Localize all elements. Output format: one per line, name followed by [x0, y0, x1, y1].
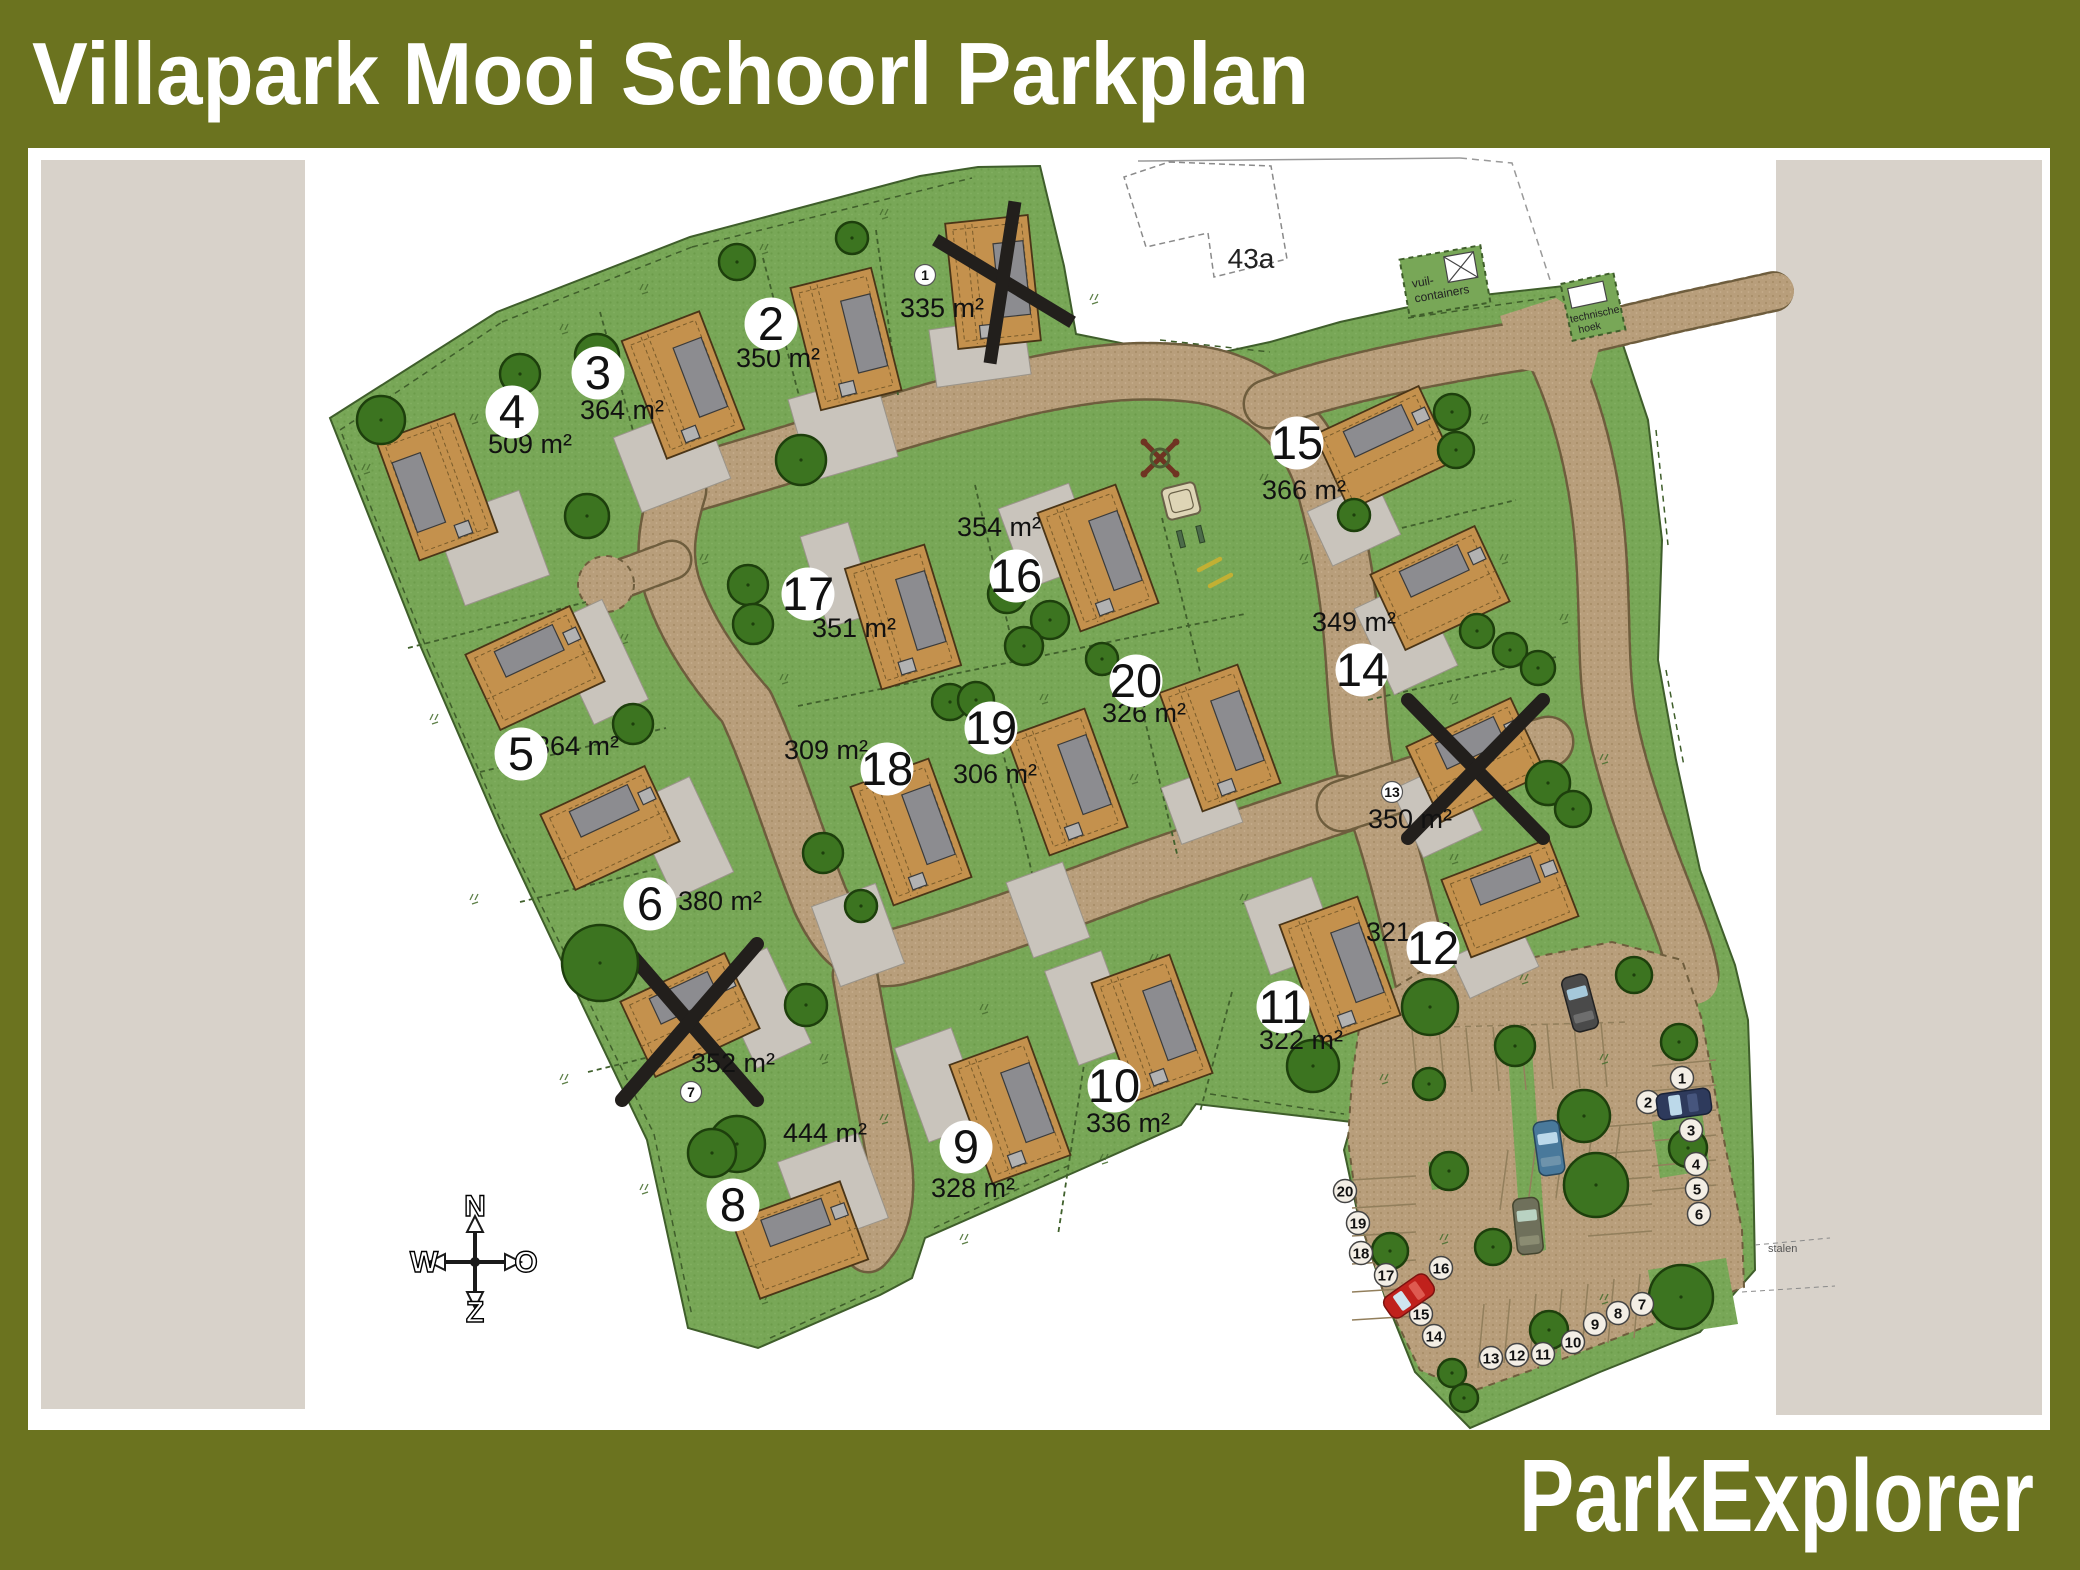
svg-text:349 m²: 349 m²	[1312, 607, 1396, 637]
svg-text:43a: 43a	[1228, 243, 1275, 274]
svg-text:Z: Z	[466, 1296, 484, 1329]
svg-text:14: 14	[1336, 643, 1388, 696]
svg-text:364 m²: 364 m²	[580, 395, 664, 425]
svg-text:444 m²: 444 m²	[783, 1118, 867, 1148]
svg-text:15: 15	[1413, 1307, 1430, 1324]
svg-text:3: 3	[1687, 1123, 1695, 1140]
svg-text:2: 2	[758, 297, 784, 350]
svg-text:1: 1	[921, 267, 929, 283]
svg-text:20: 20	[1337, 1184, 1354, 1201]
svg-text:14: 14	[1426, 1329, 1443, 1346]
svg-text:stalen: stalen	[1768, 1243, 1797, 1255]
svg-text:4: 4	[499, 385, 525, 438]
svg-text:380 m²: 380 m²	[678, 886, 762, 916]
svg-text:7: 7	[687, 1084, 695, 1100]
svg-text:352 m²: 352 m²	[691, 1048, 775, 1078]
svg-text:328 m²: 328 m²	[931, 1173, 1015, 1203]
svg-text:16: 16	[990, 549, 1042, 602]
svg-text:3: 3	[585, 346, 611, 399]
svg-text:366 m²: 366 m²	[1262, 475, 1346, 505]
svg-text:20: 20	[1110, 654, 1162, 707]
svg-text:306 m²: 306 m²	[953, 759, 1037, 789]
svg-text:5: 5	[1693, 1182, 1701, 1199]
svg-text:18: 18	[861, 742, 913, 795]
svg-text:W: W	[410, 1246, 439, 1279]
svg-text:11: 11	[1259, 980, 1308, 1033]
svg-text:18: 18	[1353, 1246, 1370, 1263]
svg-text:6: 6	[637, 877, 663, 930]
svg-text:16: 16	[1433, 1261, 1450, 1278]
svg-text:12: 12	[1509, 1348, 1526, 1365]
svg-text:10: 10	[1088, 1059, 1140, 1112]
svg-text:309 m²: 309 m²	[784, 735, 868, 765]
svg-text:336 m²: 336 m²	[1086, 1108, 1170, 1138]
svg-text:19: 19	[1350, 1216, 1367, 1233]
svg-text:9: 9	[953, 1120, 979, 1173]
svg-text:19: 19	[965, 701, 1017, 754]
svg-text:11: 11	[1535, 1347, 1551, 1364]
svg-text:O: O	[514, 1246, 537, 1279]
svg-text:8: 8	[720, 1178, 746, 1231]
svg-text:N: N	[464, 1190, 486, 1223]
svg-text:1: 1	[1678, 1071, 1686, 1088]
svg-text:15: 15	[1271, 416, 1323, 469]
svg-text:2: 2	[1644, 1095, 1652, 1112]
svg-text:Villapark Mooi Schoorl Parkpla: Villapark Mooi Schoorl Parkplan	[32, 24, 1309, 123]
svg-text:17: 17	[782, 567, 834, 620]
svg-text:5: 5	[508, 727, 534, 780]
svg-text:17: 17	[1378, 1268, 1395, 1285]
svg-text:364 m²: 364 m²	[535, 731, 619, 761]
svg-text:9: 9	[1591, 1317, 1599, 1334]
svg-text:10: 10	[1565, 1335, 1582, 1352]
svg-text:12: 12	[1407, 921, 1459, 974]
svg-text:7: 7	[1638, 1297, 1646, 1314]
svg-text:350 m²: 350 m²	[1368, 804, 1452, 834]
svg-text:13: 13	[1384, 784, 1400, 800]
svg-text:354 m²: 354 m²	[957, 512, 1041, 542]
svg-text:13: 13	[1483, 1351, 1500, 1368]
svg-text:8: 8	[1614, 1306, 1622, 1323]
svg-text:335 m²: 335 m²	[900, 293, 984, 323]
svg-text:4: 4	[1692, 1157, 1701, 1174]
svg-text:6: 6	[1695, 1207, 1703, 1224]
svg-text:ParkExplorer: ParkExplorer	[1519, 1438, 2034, 1553]
